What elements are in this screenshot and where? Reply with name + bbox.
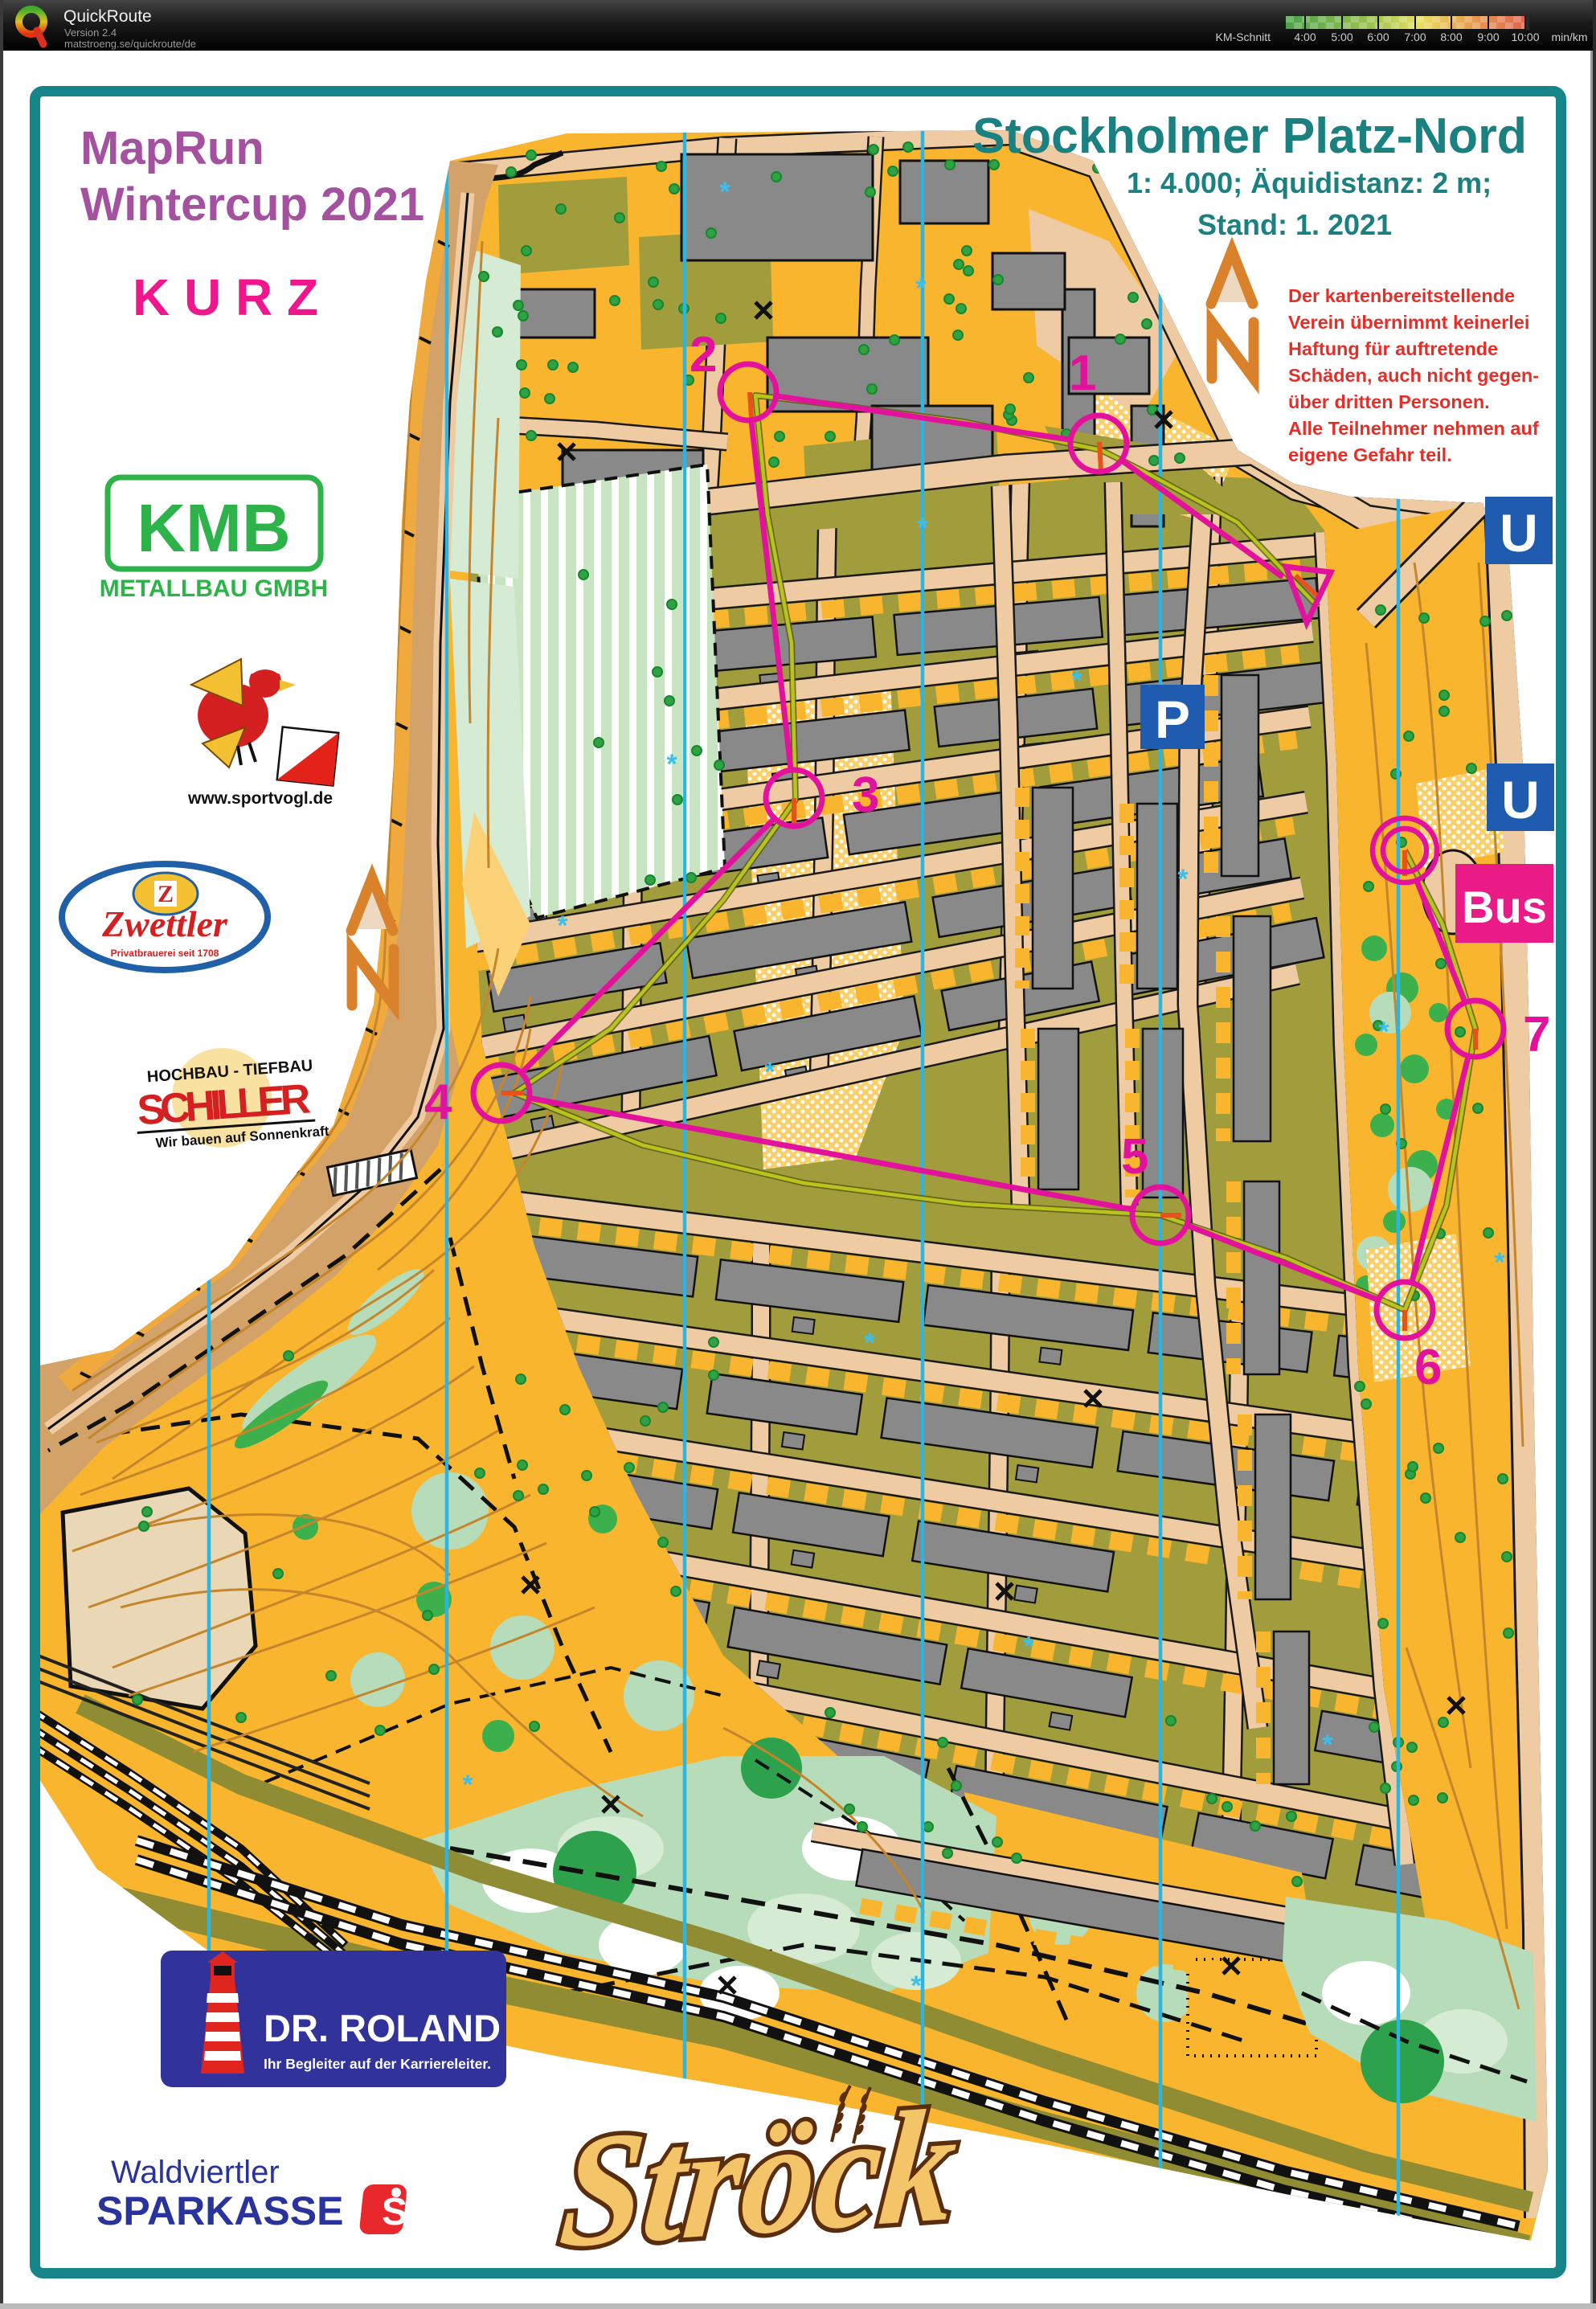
svg-text:*: * [764, 1057, 775, 1087]
svg-text:*: * [1322, 1730, 1333, 1760]
svg-text:*: * [1177, 864, 1189, 895]
svg-text:*: * [719, 177, 730, 207]
svg-text:7: 7 [1523, 1007, 1550, 1062]
svg-text:4:00: 4:00 [1294, 31, 1316, 43]
svg-text:*: * [666, 749, 677, 780]
svg-text:U: U [1500, 503, 1538, 563]
svg-text:KMB: KMB [137, 490, 290, 566]
svg-text:www.sportvogl.de: www.sportvogl.de [187, 789, 333, 808]
svg-text:1: 4.000; Äquidistanz: 2 m;: 1: 4.000; Äquidistanz: 2 m; [1127, 166, 1492, 199]
svg-text:5: 5 [1121, 1129, 1148, 1185]
svg-text:9:00: 9:00 [1477, 31, 1499, 43]
svg-text:*: * [915, 273, 927, 304]
svg-text:6:00: 6:00 [1367, 31, 1389, 43]
svg-text:Waldviertler: Waldviertler [111, 2155, 280, 2190]
svg-text:Zwettler: Zwettler [101, 903, 228, 944]
svg-text:S: S [382, 2191, 407, 2233]
svg-text:K U R Z: K U R Z [133, 268, 318, 326]
svg-text:Bus: Bus [1462, 882, 1547, 932]
svg-text:min/km: min/km [1551, 31, 1587, 43]
svg-text:4: 4 [424, 1075, 452, 1130]
svg-text:Ströck: Ströck [554, 2075, 964, 2282]
svg-text:5:00: 5:00 [1331, 31, 1353, 43]
svg-text:Ihr Begleiter auf der Karriere: Ihr Begleiter auf der Karriereleiter. [264, 2056, 491, 2072]
svg-text:U: U [1501, 770, 1540, 829]
svg-text:Stockholmer Platz-Nord: Stockholmer Platz-Nord [972, 108, 1527, 164]
svg-text:*: * [917, 513, 928, 543]
svg-text:8:00: 8:00 [1440, 31, 1462, 43]
svg-text:QuickRoute: QuickRoute [63, 7, 152, 26]
svg-text:Verein übernimmt keinerlei: Verein übernimmt keinerlei [1288, 312, 1529, 333]
svg-text:3: 3 [852, 768, 879, 823]
svg-text:7:00: 7:00 [1404, 31, 1426, 43]
svg-text:METALLBAU GMBH: METALLBAU GMBH [100, 575, 328, 602]
svg-text:P: P [1155, 690, 1190, 749]
svg-text:Der kartenbereitstellende: Der kartenbereitstellende [1288, 285, 1515, 306]
svg-text:matstroeng.se/quickroute/de: matstroeng.se/quickroute/de [64, 38, 196, 50]
svg-text:*: * [462, 1770, 473, 1800]
svg-text:*: * [557, 911, 568, 941]
svg-text:Wintercup 2021: Wintercup 2021 [80, 178, 424, 231]
svg-text:Privatbrauerei seit 1708: Privatbrauerei seit 1708 [111, 948, 219, 959]
svg-text:MapRun: MapRun [80, 122, 264, 174]
svg-text:eigene Gefahr teil.: eigene Gefahr teil. [1288, 444, 1452, 465]
svg-text:Stand: 1. 2021: Stand: 1. 2021 [1197, 208, 1392, 241]
svg-text:DR. ROLAND: DR. ROLAND [264, 2007, 501, 2049]
svg-text:2: 2 [690, 327, 717, 383]
svg-text:*: * [911, 1971, 922, 2001]
svg-text:KM-Schnitt: KM-Schnitt [1216, 31, 1271, 43]
svg-text:Version 2.4: Version 2.4 [64, 27, 117, 39]
svg-text:10:00: 10:00 [1511, 31, 1539, 43]
svg-text:über dritten Personen.: über dritten Personen. [1288, 391, 1490, 412]
svg-text:Alle Teilnehmer nehmen auf: Alle Teilnehmer nehmen auf [1288, 418, 1539, 439]
svg-text:*: * [1378, 1017, 1389, 1047]
svg-text:*: * [1071, 665, 1082, 696]
svg-text:1: 1 [1069, 346, 1096, 401]
svg-text:6: 6 [1414, 1340, 1442, 1395]
svg-text:Haftung für auftretende: Haftung für auftretende [1288, 338, 1498, 359]
svg-text:*: * [864, 1328, 875, 1358]
svg-text:*: * [1023, 1631, 1034, 1662]
svg-text:SPARKASSE: SPARKASSE [96, 2188, 343, 2233]
svg-text:*: * [1494, 1247, 1505, 1278]
svg-text:Schäden, auch nicht gegen-: Schäden, auch nicht gegen- [1288, 365, 1539, 386]
